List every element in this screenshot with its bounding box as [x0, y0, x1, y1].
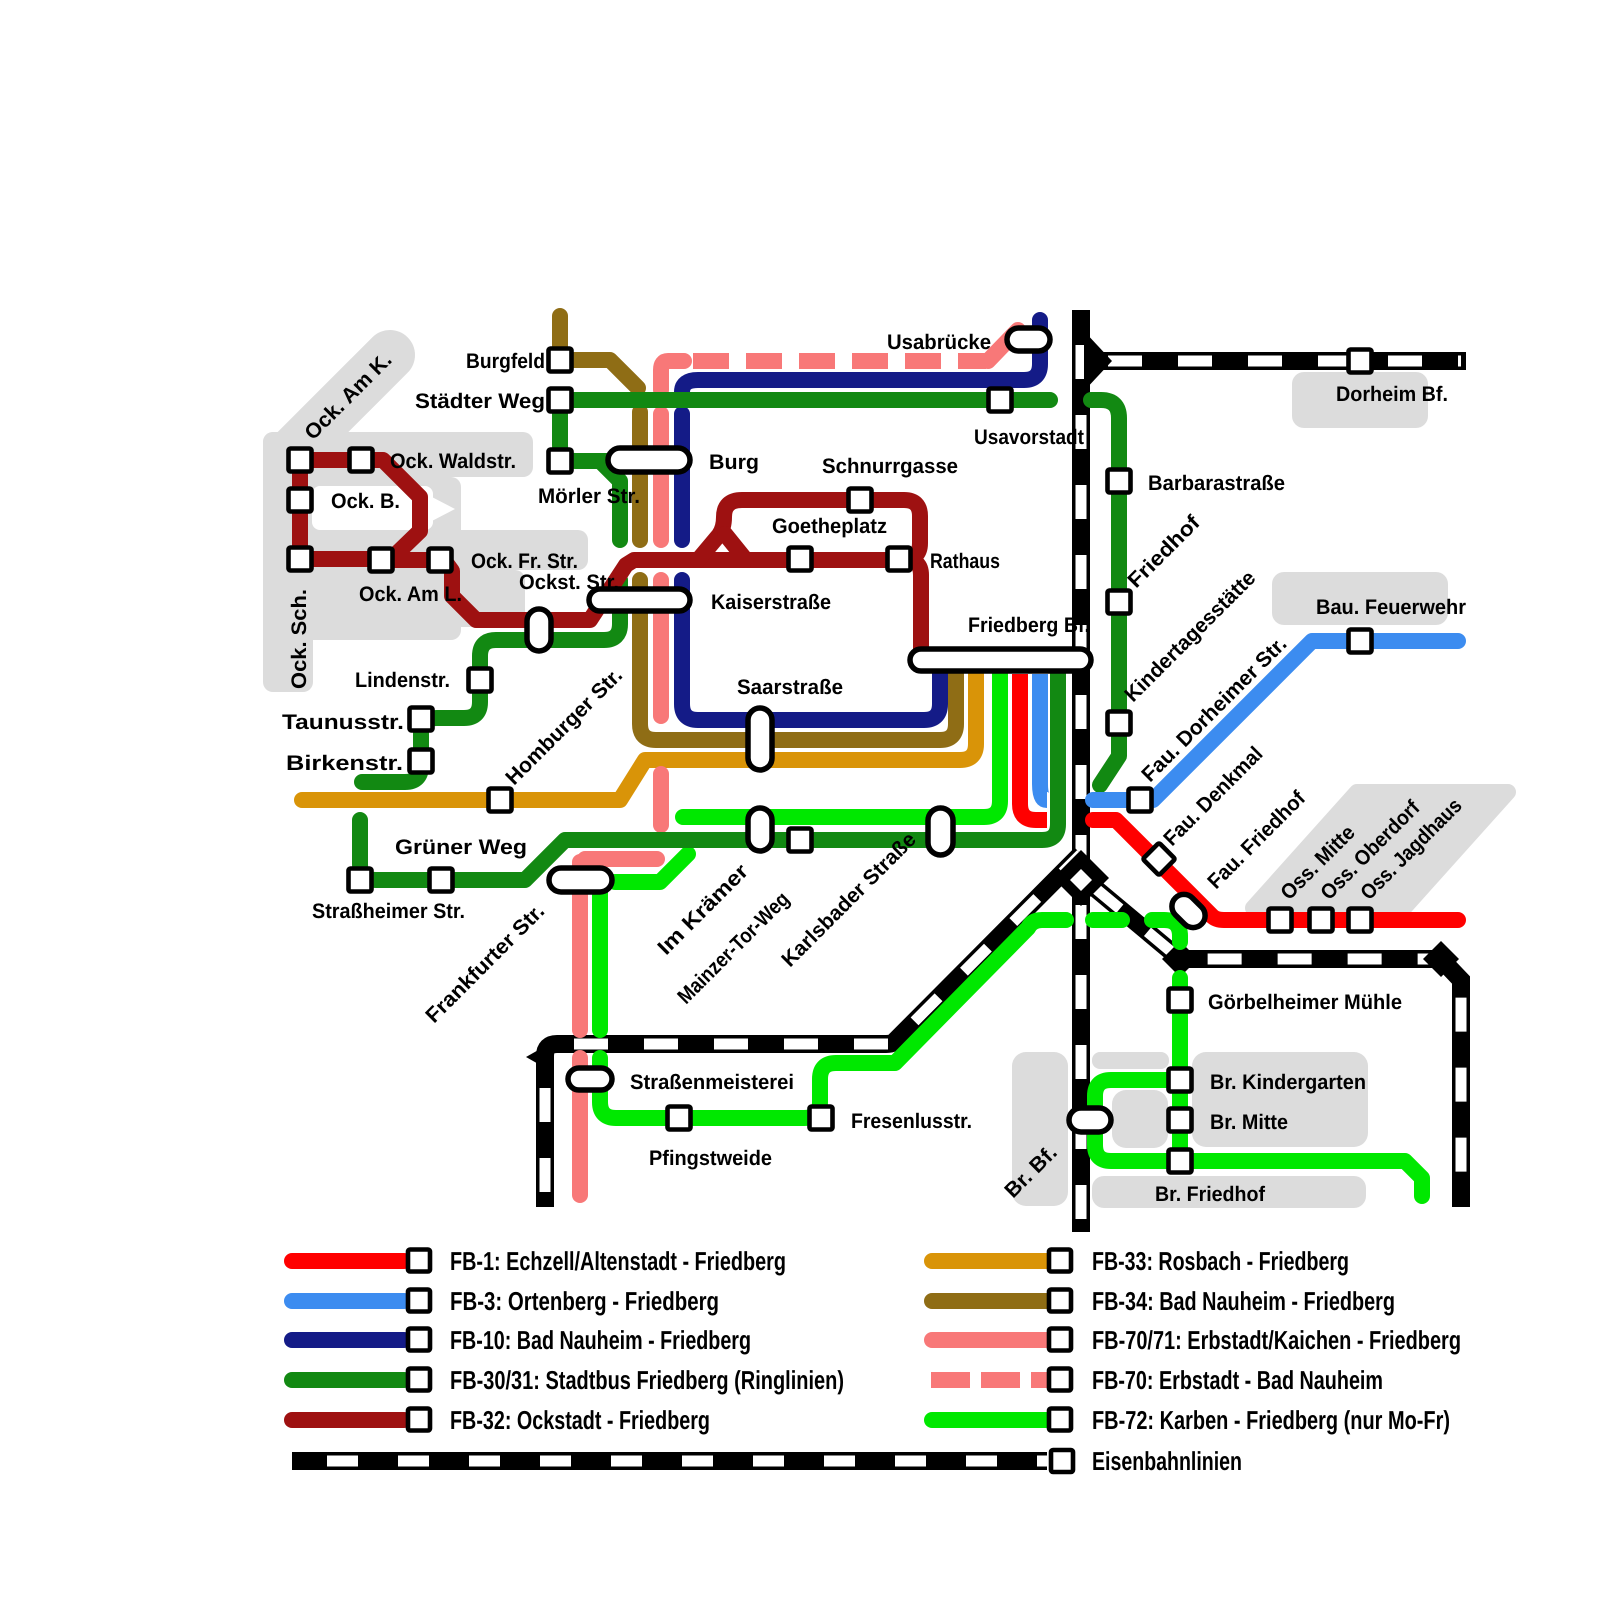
svg-text:Saarstraße: Saarstraße: [737, 676, 843, 699]
svg-text:Friedberg Bf.: Friedberg Bf.: [968, 614, 1090, 637]
svg-text:Birkenstr.: Birkenstr.: [286, 752, 403, 775]
svg-text:FB-3: Ortenberg - Friedberg: FB-3: Ortenberg - Friedberg: [450, 1286, 719, 1316]
svg-text:FB-1: Echzell/Altenstadt - Fri: FB-1: Echzell/Altenstadt - Friedberg: [450, 1246, 786, 1276]
svg-text:Pfingstweide: Pfingstweide: [649, 1147, 772, 1170]
svg-text:Görbelheimer Mühle: Görbelheimer Mühle: [1208, 991, 1402, 1014]
svg-text:Ock. Waldstr.: Ock. Waldstr.: [390, 450, 516, 473]
svg-text:Taunusstr.: Taunusstr.: [282, 711, 404, 734]
svg-text:Schnurrgasse: Schnurrgasse: [822, 455, 958, 478]
svg-text:Grüner Weg: Grüner Weg: [395, 836, 527, 859]
svg-text:Mörler Str.: Mörler Str.: [538, 485, 640, 508]
svg-text:Fresenlusstr.: Fresenlusstr.: [851, 1110, 972, 1133]
svg-text:Burg: Burg: [709, 451, 759, 474]
svg-text:FB-34: Bad Nauheim - Friedberg: FB-34: Bad Nauheim - Friedberg: [1092, 1286, 1395, 1316]
svg-text:Br. Mitte: Br. Mitte: [1210, 1111, 1288, 1134]
svg-text:Dorheim Bf.: Dorheim Bf.: [1336, 383, 1448, 406]
svg-text:Ock. Am L.: Ock. Am L.: [359, 583, 462, 606]
svg-text:Bau. Feuerwehr: Bau. Feuerwehr: [1316, 596, 1466, 619]
svg-text:Rathaus: Rathaus: [930, 550, 1000, 573]
svg-text:Barbarastraße: Barbarastraße: [1148, 472, 1285, 495]
svg-text:Usabrücke: Usabrücke: [887, 331, 991, 354]
svg-text:FB-70/71: Erbstadt/Kaichen - F: FB-70/71: Erbstadt/Kaichen - Friedberg: [1092, 1325, 1461, 1355]
svg-text:FB-72: Karben - Friedberg (nur: FB-72: Karben - Friedberg (nur Mo-Fr): [1092, 1405, 1450, 1435]
svg-text:FB-10: Bad Nauheim - Friedberg: FB-10: Bad Nauheim - Friedberg: [450, 1325, 751, 1355]
svg-text:Straßheimer Str.: Straßheimer Str.: [312, 900, 465, 923]
svg-text:Lindenstr.: Lindenstr.: [355, 669, 450, 692]
svg-text:Ock. B.: Ock. B.: [331, 490, 400, 513]
svg-text:Goetheplatz: Goetheplatz: [772, 515, 887, 538]
svg-text:Ock. Sch.: Ock. Sch.: [288, 589, 311, 689]
svg-text:FB-32: Ockstadt - Friedberg: FB-32: Ockstadt - Friedberg: [450, 1405, 710, 1435]
svg-text:FB-30/31: Stadtbus Friedberg (: FB-30/31: Stadtbus Friedberg (Ringlinien…: [450, 1365, 844, 1395]
svg-text:Eisenbahnlinien: Eisenbahnlinien: [1092, 1446, 1242, 1476]
svg-text:Usavorstadt: Usavorstadt: [974, 426, 1084, 449]
svg-text:Br. Friedhof: Br. Friedhof: [1155, 1183, 1266, 1206]
svg-text:Ock. Fr. Str.: Ock. Fr. Str.: [471, 550, 578, 573]
svg-text:Kaiserstraße: Kaiserstraße: [711, 591, 831, 614]
svg-text:Straßenmeisterei: Straßenmeisterei: [630, 1071, 794, 1094]
svg-text:Br. Kindergarten: Br. Kindergarten: [1210, 1071, 1366, 1094]
svg-text:Ockst. Str.: Ockst. Str.: [519, 571, 619, 594]
svg-text:FB-70: Erbstadt - Bad Nauheim: FB-70: Erbstadt - Bad Nauheim: [1092, 1365, 1383, 1395]
svg-text:FB-33: Rosbach - Friedberg: FB-33: Rosbach - Friedberg: [1092, 1246, 1349, 1276]
svg-text:Burgfeld: Burgfeld: [466, 350, 545, 373]
svg-text:Städter Weg: Städter Weg: [415, 390, 545, 413]
